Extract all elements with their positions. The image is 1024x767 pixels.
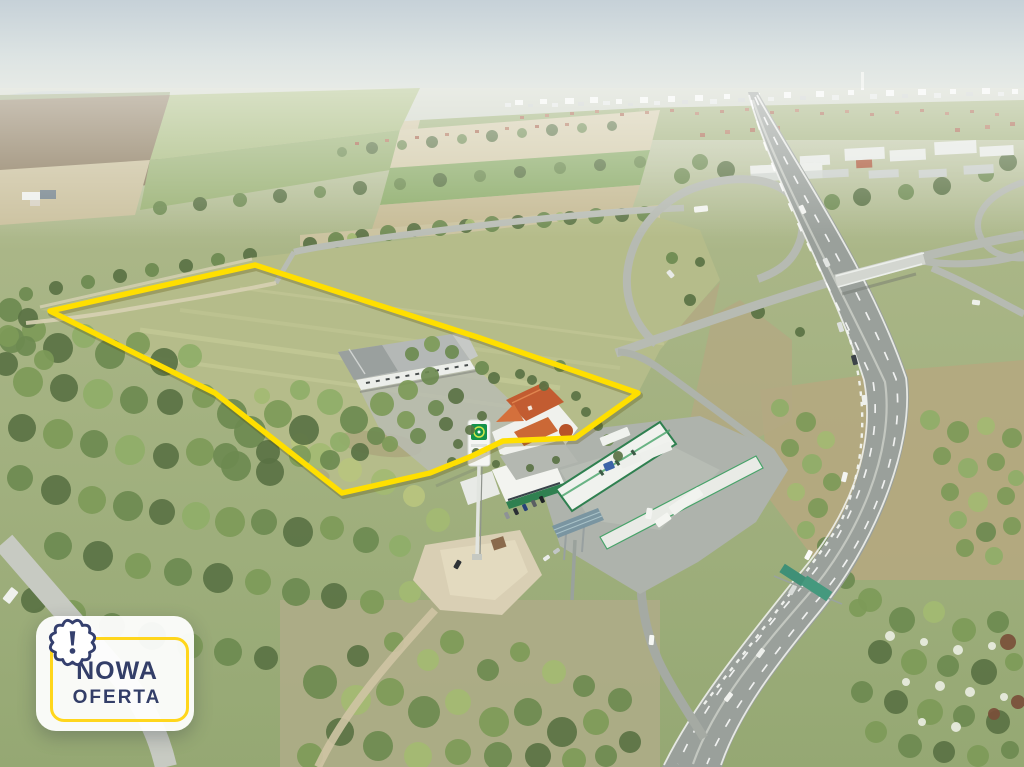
exclamation-seal-icon [43, 613, 102, 672]
sky [0, 0, 1024, 96]
new-offer-badge: NOWA OFERTA [36, 616, 194, 731]
aerial-property-photo[interactable]: NOWA OFERTA [0, 0, 1024, 767]
haze-overlay [0, 88, 1024, 238]
badge-subtitle: OFERTA [40, 686, 194, 711]
